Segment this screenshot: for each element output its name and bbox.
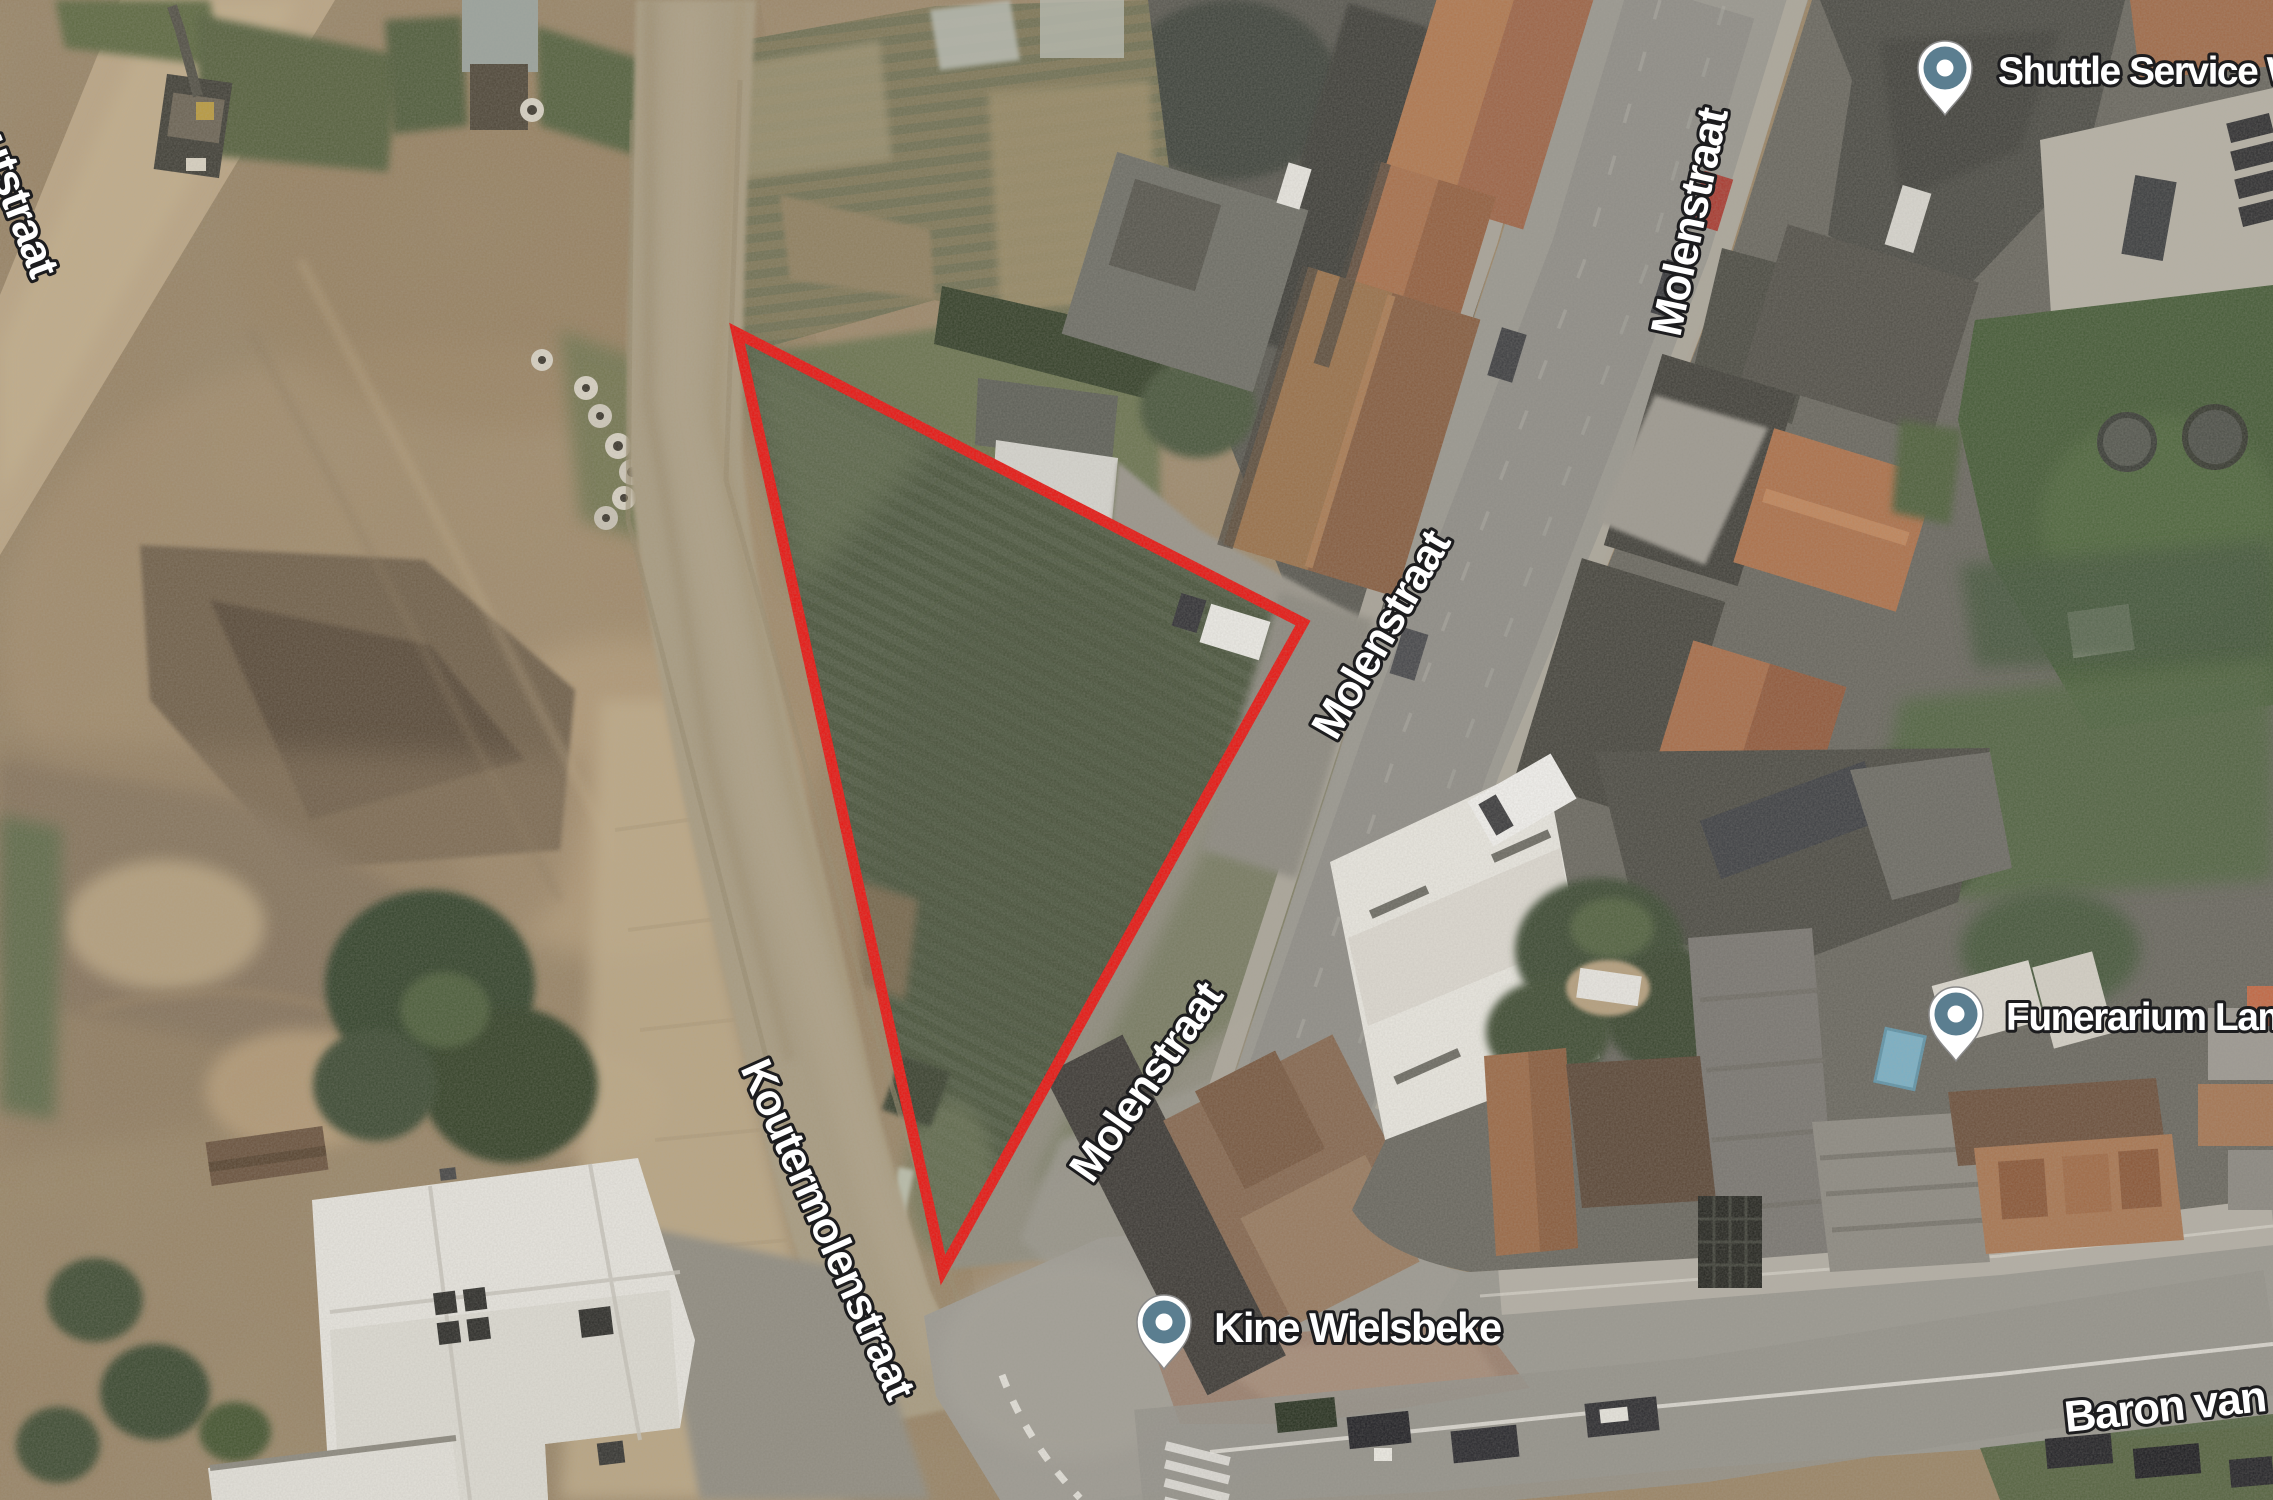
svg-text:Shuttle Service W: Shuttle Service W bbox=[1998, 50, 2273, 93]
svg-text:Funerarium Lam: Funerarium Lam bbox=[2006, 996, 2273, 1039]
svg-text:Kine Wielsbeke: Kine Wielsbeke bbox=[1214, 1304, 1501, 1351]
